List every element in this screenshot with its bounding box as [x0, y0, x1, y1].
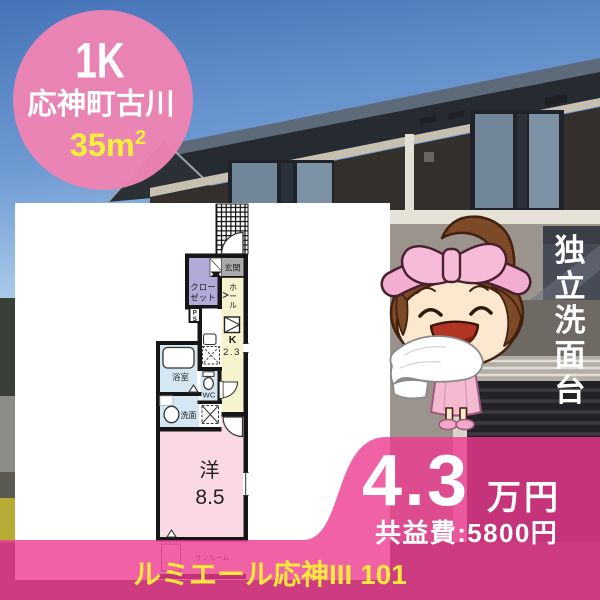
svg-text:8.5: 8.5	[195, 486, 224, 509]
svg-text:玄関: 玄関	[225, 263, 241, 273]
svg-text:WC: WC	[203, 391, 216, 400]
svg-text:クロー: クロー	[190, 282, 216, 292]
svg-text:4.3: 4.3	[362, 441, 470, 521]
svg-text:洗面: 洗面	[181, 410, 197, 420]
svg-text:1K: 1K	[75, 32, 125, 89]
svg-text:ゼット: ゼット	[190, 293, 216, 303]
svg-text:ル: ル	[229, 301, 237, 310]
svg-text:2.3: 2.3	[223, 347, 241, 358]
svg-text:S: S	[193, 316, 197, 323]
svg-text:35m2: 35m2	[70, 126, 146, 163]
svg-text:面: 面	[555, 338, 586, 373]
svg-text:K: K	[229, 334, 237, 346]
svg-text:ー: ー	[229, 292, 237, 301]
svg-text:独: 独	[555, 233, 586, 268]
svg-text:応神町古川: 応神町古川	[27, 88, 175, 121]
svg-text:共益費:5800円: 共益費:5800円	[375, 518, 558, 548]
svg-text:ルミエール応神III 101: ルミエール応神III 101	[133, 558, 407, 590]
svg-text:洋: 洋	[200, 459, 220, 482]
svg-text:立: 立	[555, 269, 586, 304]
svg-text:浴室: 浴室	[172, 372, 189, 382]
svg-text:台: 台	[555, 373, 586, 408]
svg-text:ホ: ホ	[229, 283, 237, 292]
svg-text:万円: 万円	[487, 479, 561, 517]
svg-text:洗: 洗	[555, 303, 586, 338]
